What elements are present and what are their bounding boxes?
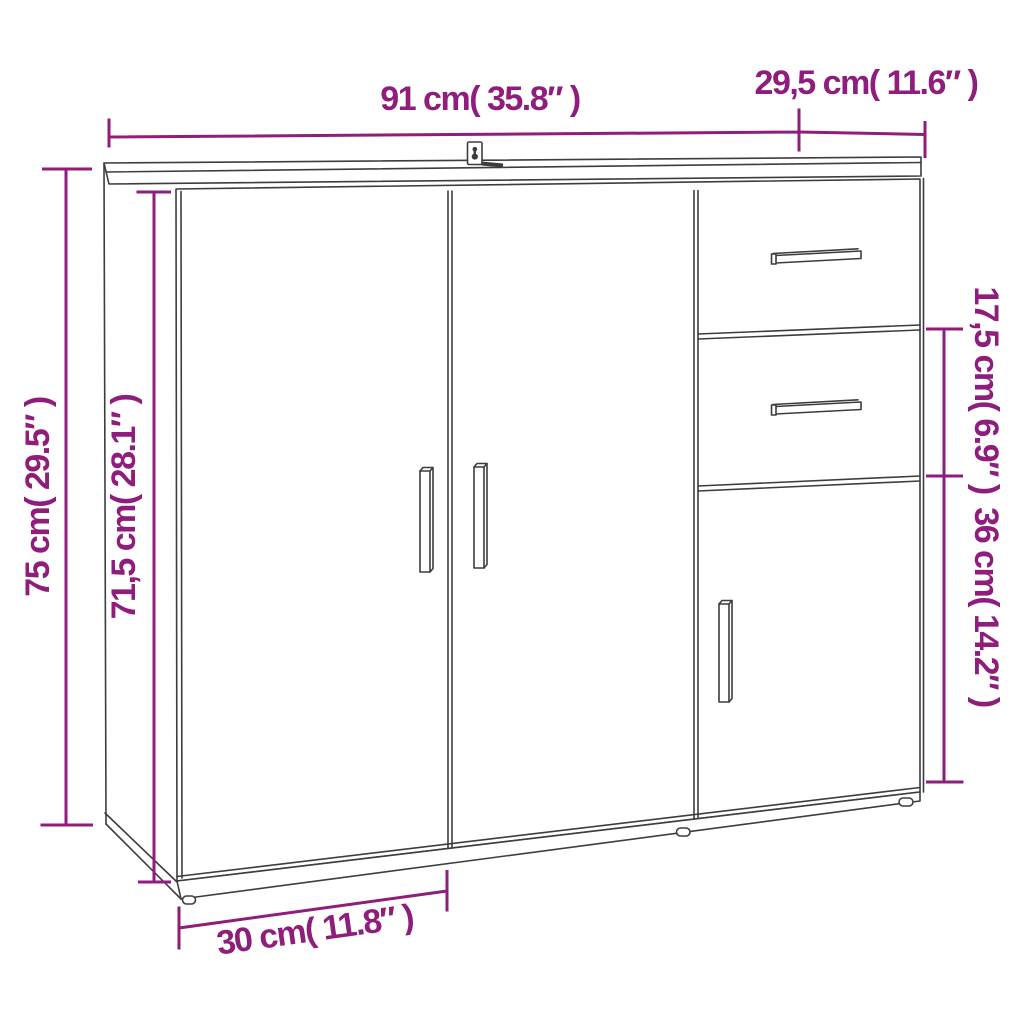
dimension-diagram: 91 cm( 35.8″ ) 29,5 cm( 11.6″ ) 75 cm( 2… (0, 0, 1024, 1024)
right-dimension-line (926, 329, 964, 782)
foot-left (183, 896, 196, 904)
base-depth-label: 30 cm( 11.8″ ) (214, 897, 415, 962)
cabinet-side-plinth-edge (106, 824, 181, 899)
cabinet-front-face (176, 179, 920, 881)
cabinet-drawing (104, 142, 924, 904)
door-section-height-label: 36 cm( 14.2″ ) (967, 507, 1005, 707)
cabinet-side-bottom-edge (105, 813, 177, 882)
foot-right (899, 798, 913, 806)
depth-top-label: 29,5 cm( 11.6″ ) (755, 64, 978, 102)
cabinet-front-left-inner-edge (181, 192, 182, 879)
sideboard-diagram-svg: 91 cm( 35.8″ ) 29,5 cm( 11.6″ ) 75 cm( 2… (0, 0, 1024, 1024)
width-label: 91 cm( 35.8″ ) (380, 80, 580, 118)
depth-top-dimension-line (799, 121, 925, 158)
foot-middle (677, 828, 691, 836)
height-label: 75 cm( 29.5″ ) (19, 397, 57, 597)
inner-height-label: 71,5 cm( 28.1″ ) (105, 394, 143, 619)
drawer-height-label: 17,5 cm( 6.9″ ) (967, 286, 1005, 494)
